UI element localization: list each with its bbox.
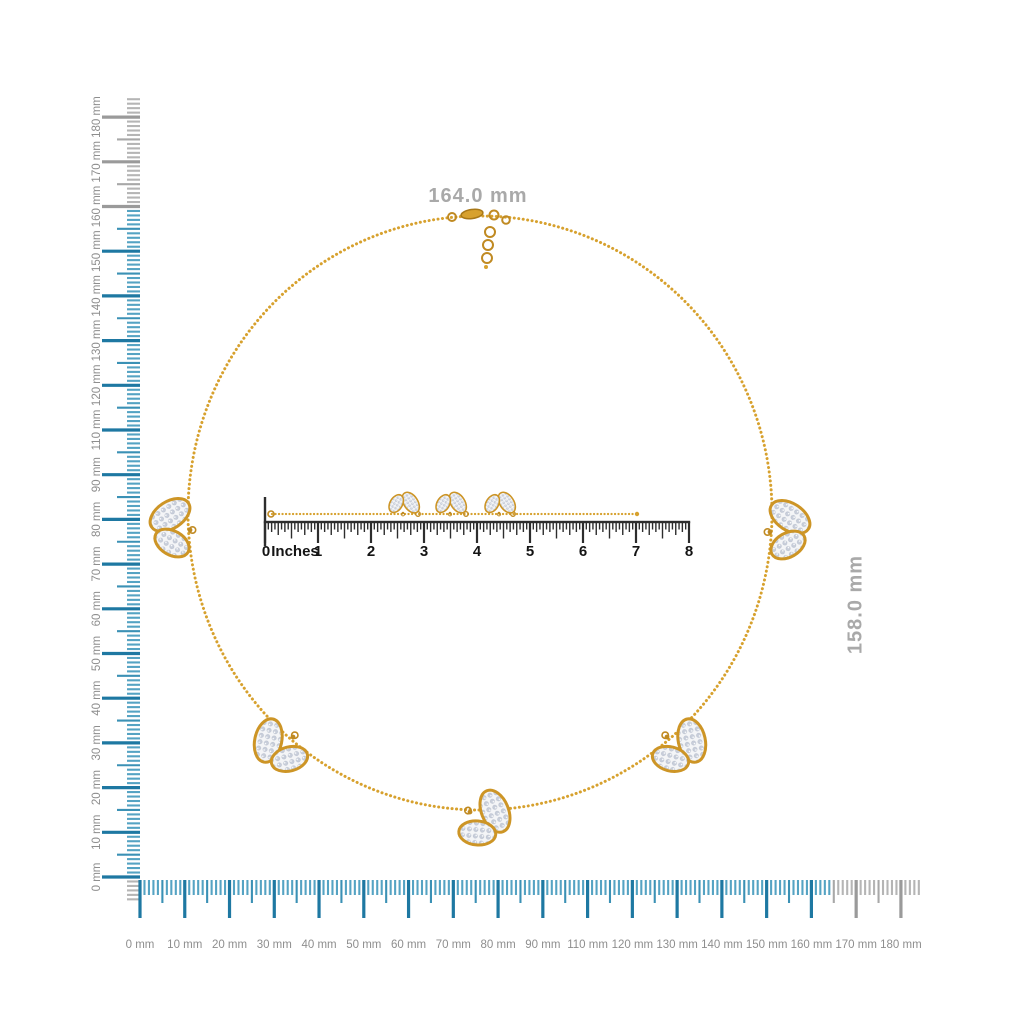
bottom-ruler-label: 160 mm — [791, 939, 833, 951]
bottom-ruler-label: 140 mm — [701, 939, 743, 951]
inch-number-label: 1 — [314, 543, 322, 560]
chain-end-dot — [635, 512, 639, 516]
butterfly-charm-1 — [386, 489, 423, 516]
bottom-ruler-label: 70 mm — [436, 939, 471, 951]
bottom-ruler-label: 120 mm — [612, 939, 654, 951]
necklace — [144, 208, 816, 865]
bottom-ruler-label: 10 mm — [167, 939, 202, 951]
bottom-ruler-label: 20 mm — [212, 939, 247, 951]
bottom-ruler-label: 150 mm — [746, 939, 788, 951]
left-ruler-label: 30 mm — [91, 725, 103, 760]
measurement-figure: 180 mm170 mm160 mm150 mm140 mm130 mm120 … — [0, 0, 1024, 1024]
bottom-ruler-label: 110 mm — [567, 939, 608, 951]
left-ruler-label: 0 mm — [91, 863, 103, 892]
bottom-ruler-label: 180 mm — [880, 939, 922, 951]
left-ruler-label: 40 mm — [91, 681, 103, 716]
inch-number-label: 6 — [579, 543, 587, 560]
width-dimension-label: 164.0 mm — [398, 185, 558, 208]
inch-number-label: 8 — [685, 543, 693, 560]
left-ruler-label: 150 mm — [91, 230, 103, 272]
left-ruler-label: 130 mm — [91, 320, 103, 362]
left-ruler-label: 170 mm — [91, 141, 103, 183]
bottom-ruler-label: 50 mm — [346, 939, 381, 951]
butterfly-pendant-bottom — [447, 777, 530, 865]
inch-zero-label: 0 — [262, 543, 270, 560]
left-ruler-label: 80 mm — [91, 502, 103, 537]
inch-number-label: 7 — [632, 543, 640, 560]
bottom-ruler-label: 40 mm — [301, 939, 336, 951]
butterfly-pendant-right — [764, 494, 816, 565]
left-ruler-label: 140 mm — [91, 275, 103, 317]
inch-number-label: 4 — [473, 543, 482, 560]
left-ruler-label: 50 mm — [91, 636, 103, 671]
lobster-clasp — [460, 208, 483, 220]
bottom-ruler-mm: 0 mm10 mm20 mm30 mm40 mm50 mm60 mm70 mm8… — [126, 880, 922, 951]
left-ruler-label: 160 mm — [91, 186, 103, 228]
bottom-ruler-label: 90 mm — [525, 939, 560, 951]
butterfly-charm-3 — [482, 489, 519, 516]
left-ruler-label: 10 mm — [91, 815, 103, 850]
bottom-ruler-label: 0 mm — [126, 939, 155, 951]
bottom-ruler-label: 80 mm — [481, 939, 516, 951]
left-ruler-label: 60 mm — [91, 591, 103, 626]
inch-unit-label: Inches — [271, 543, 319, 560]
butterfly-charm-2 — [433, 489, 470, 516]
height-dimension-label: 158.0 mm — [845, 525, 868, 685]
inch-number-label: 5 — [526, 543, 534, 560]
figure-canvas: 180 mm170 mm160 mm150 mm140 mm130 mm120 … — [0, 0, 1024, 1024]
left-ruler-mm: 180 mm170 mm160 mm150 mm140 mm130 mm120 … — [91, 96, 140, 899]
left-ruler-label: 180 mm — [91, 96, 103, 138]
left-ruler-label: 110 mm — [91, 410, 103, 451]
bottom-ruler-label: 60 mm — [391, 939, 426, 951]
left-ruler-label: 20 mm — [91, 770, 103, 805]
bottom-ruler-label: 130 mm — [656, 939, 698, 951]
bottom-ruler-label: 30 mm — [257, 939, 292, 951]
butterfly-pendant-bottom-left — [234, 706, 321, 793]
inch-number-label: 3 — [420, 543, 428, 560]
left-ruler-label: 90 mm — [91, 457, 103, 492]
inch-ruler: 0Inches12345678 — [262, 497, 693, 560]
butterfly-pendant-bottom-right — [640, 706, 727, 793]
straight-chain — [268, 489, 639, 517]
inch-number-label: 2 — [367, 543, 375, 560]
left-ruler-label: 120 mm — [91, 365, 103, 407]
left-ruler-label: 70 mm — [91, 547, 103, 582]
bottom-ruler-label: 170 mm — [835, 939, 877, 951]
